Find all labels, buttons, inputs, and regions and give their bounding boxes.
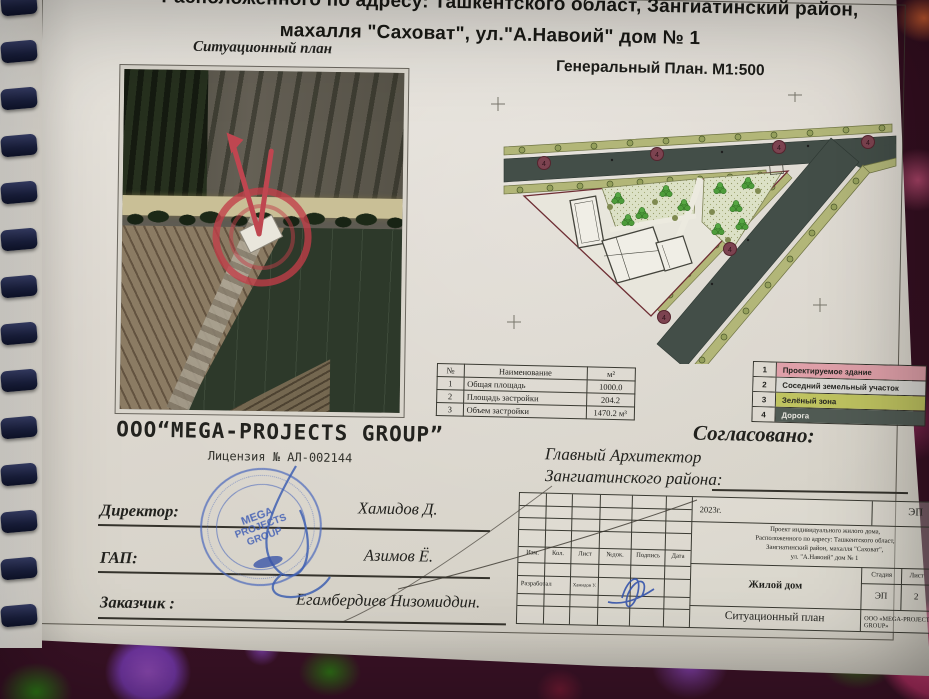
legend-num: 2: [753, 377, 776, 392]
col-kol: Кол.: [545, 550, 570, 558]
situational-plan-caption: Ситуационный план: [193, 39, 332, 58]
row-num: 2: [437, 390, 464, 404]
svg-text:4: 4: [866, 140, 870, 147]
title-block: Изм. Кол. Лист №док. Подпись Дата Разраб…: [516, 492, 929, 634]
plan-legend: 1 Проектируемое здание 2 Соседний земель…: [751, 361, 927, 427]
legend-label: Проектируемое здание: [783, 365, 872, 376]
stadia-value: ЭП: [862, 590, 901, 601]
gap-role: ГАП:: [100, 548, 138, 569]
crosshair-mark: [507, 315, 521, 329]
svg-text:4: 4: [655, 152, 659, 159]
stadia-header: Стадия: [862, 571, 901, 579]
col-podpis: Подпись: [631, 552, 664, 560]
gap-name: Азимов Ё.: [364, 545, 433, 566]
razrabotal-name: Хамидов У.: [573, 583, 596, 589]
director-name: Хамидов Д.: [358, 498, 438, 519]
svg-text:4: 4: [542, 161, 546, 168]
col-unit: м²: [587, 367, 636, 381]
list-header: Лист: [902, 572, 929, 580]
row-name: Объем застройки: [463, 403, 586, 419]
col-ndok: №док.: [599, 551, 630, 559]
photo-of-architectural-document: Расположенного по адресу: Ташкентского о…: [0, 0, 929, 699]
approval-line1: Главный Архитектор: [545, 444, 702, 468]
row-num: 1: [437, 377, 464, 391]
crosshair-mark: [491, 97, 505, 111]
year-label: 2023г.: [700, 504, 722, 515]
approval-line2: Зангиатинского района:: [545, 466, 723, 490]
approval-title: Согласовано:: [693, 421, 815, 449]
crosshair-mark: [788, 92, 802, 102]
legend-label: Зелёный зона: [782, 395, 837, 405]
location-marker-overlay: [120, 69, 405, 413]
svg-text:4: 4: [777, 145, 781, 152]
legend-num: 1: [754, 362, 777, 377]
director-role: Директор:: [100, 500, 179, 521]
satellite-photo: [120, 69, 405, 413]
org-name: ООО «MEGA-PROJECTS GROUP»: [864, 615, 929, 631]
row-num: 3: [436, 403, 463, 417]
customer-role: Заказчик :: [100, 592, 175, 613]
col-list: Лист: [571, 550, 598, 558]
col-num: №: [437, 364, 464, 378]
row-value: 1470.2 м³: [586, 406, 635, 420]
svg-text:4: 4: [728, 247, 732, 254]
row-value: 204.2: [586, 393, 635, 407]
col-izm: Изм.: [520, 549, 544, 557]
general-plan-drawing: 4 4 4 4 4 4: [490, 92, 910, 364]
list-value: 2: [902, 591, 929, 602]
customer-name: Егамбердиев Низомиддин.: [296, 590, 480, 613]
razrabotal-label: Разработал: [521, 580, 552, 588]
area-table: № Наименование м² 1 Общая площадь 1000.0…: [436, 363, 636, 421]
object-name: Жилой дом: [690, 578, 861, 593]
col-data: Дата: [665, 552, 690, 560]
legend-num: 4: [752, 407, 775, 422]
row-value: 1000.0: [586, 380, 635, 394]
satellite-map: [115, 64, 410, 418]
legend-label: Дорога: [781, 410, 809, 420]
crosshair-mark: [813, 298, 827, 312]
svg-text:4: 4: [662, 315, 666, 322]
stage-code-top: ЭП: [872, 506, 929, 519]
sheet-name: Ситуационный план: [689, 609, 860, 625]
legend-label: Соседний земельный участок: [782, 380, 899, 392]
legend-num: 3: [753, 392, 776, 407]
